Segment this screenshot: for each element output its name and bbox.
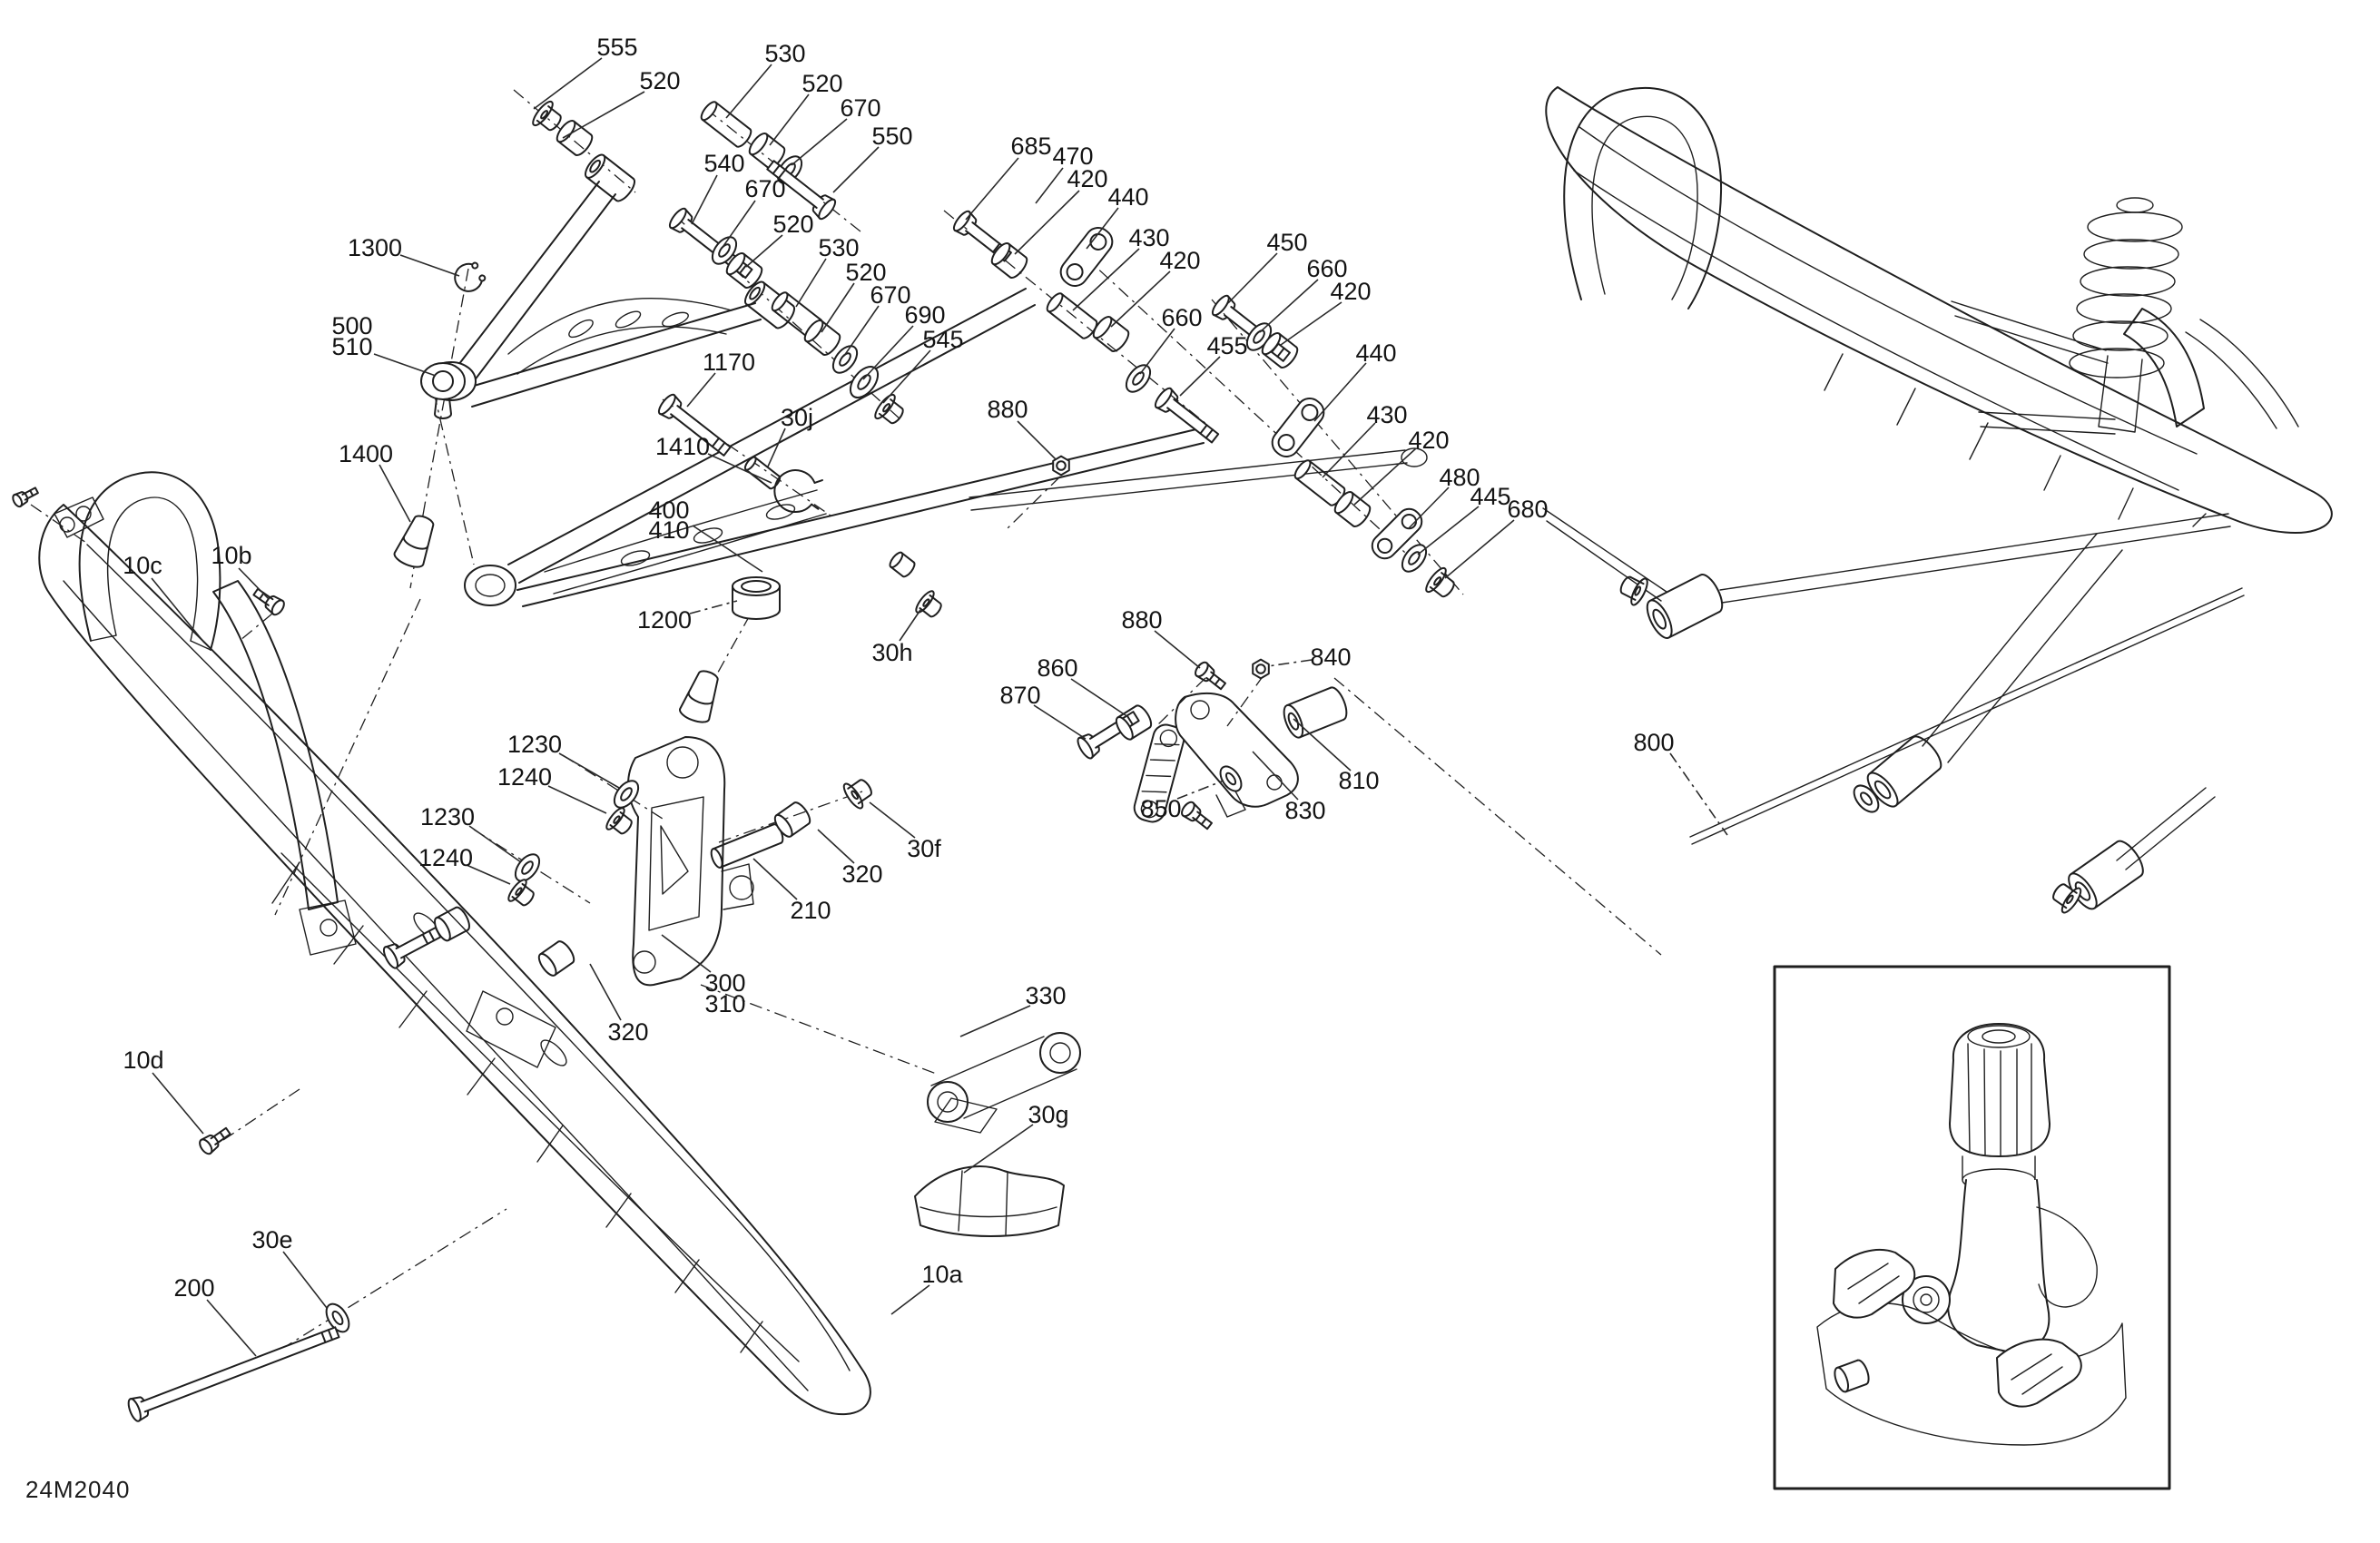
- leader-line-530: [796, 259, 826, 307]
- leader-line-320: [590, 964, 621, 1020]
- part-bigbushing: [582, 152, 638, 203]
- leader-line-550: [833, 147, 879, 192]
- assembly-axis: [259, 1209, 506, 1363]
- callout-330: 330: [1025, 982, 1066, 1009]
- leader-line-1410: [708, 454, 772, 483]
- part-nut: [1253, 660, 1269, 679]
- callout-30h: 30h: [871, 639, 912, 666]
- callout-670: 670: [744, 175, 785, 202]
- detail-inset: [1775, 967, 2169, 1489]
- leader-line-410: [693, 526, 762, 572]
- callout-200: 200: [173, 1274, 214, 1302]
- leader-line-1230: [559, 753, 619, 788]
- part-bushing: [802, 318, 842, 358]
- leader-line-480: [1409, 487, 1449, 528]
- leader-line-530: [726, 64, 772, 118]
- callout-450: 450: [1266, 229, 1307, 256]
- leader-line-210: [753, 859, 797, 899]
- callout-410: 410: [648, 516, 689, 544]
- leader-line-10d: [152, 1073, 203, 1134]
- callout-445: 445: [1470, 483, 1510, 510]
- leader-line-860: [1071, 679, 1128, 717]
- leader-line-510: [374, 354, 436, 376]
- leader-line-470: [1036, 168, 1063, 203]
- callout-430: 430: [1366, 401, 1407, 428]
- part-bolt: [126, 1322, 341, 1423]
- part-bigbushing: [1642, 571, 1726, 642]
- leader-line-660: [1140, 329, 1175, 374]
- part-spacer: [699, 100, 754, 150]
- callout-1410: 1410: [655, 433, 710, 460]
- callout-660: 660: [1161, 304, 1202, 331]
- callout-545: 545: [922, 326, 963, 353]
- callout-520: 520: [772, 211, 813, 238]
- part-screw: [11, 485, 39, 508]
- callout-30e: 30e: [251, 1226, 292, 1253]
- callout-800: 800: [1633, 729, 1674, 756]
- part-bumper: [392, 512, 440, 571]
- leader-line-520: [821, 283, 854, 332]
- callout-830: 830: [1284, 797, 1325, 824]
- leader-line-330: [960, 1006, 1030, 1037]
- part-bushing: [1332, 489, 1372, 529]
- leader-line-670: [844, 306, 879, 356]
- assembly-axis: [275, 599, 420, 915]
- assembly-axis: [1334, 678, 1661, 955]
- leader-line-670: [792, 119, 847, 165]
- leader-line-880: [1155, 631, 1200, 668]
- leader-line-1200: [690, 601, 737, 614]
- part-clampring: [772, 467, 823, 516]
- callout-1170: 1170: [703, 349, 755, 376]
- callout-690: 690: [904, 301, 945, 329]
- assembly-axis: [514, 90, 635, 192]
- leader-line-1240: [548, 786, 606, 813]
- leader-line-320: [818, 830, 854, 863]
- part-bolt: [1153, 386, 1223, 447]
- part-flangenut: [604, 806, 636, 840]
- callout-880: 880: [1121, 606, 1162, 634]
- leader-line-30e: [283, 1252, 327, 1308]
- part-bigbushing: [1280, 685, 1350, 741]
- part-bushing: [772, 800, 812, 839]
- callout-30j: 30j: [781, 404, 813, 431]
- part-screw: [1179, 800, 1215, 832]
- part-bushing: [536, 939, 576, 978]
- leader-line-520: [563, 92, 644, 138]
- callout-685: 685: [1010, 133, 1051, 160]
- part-spacer: [1045, 291, 1100, 341]
- assembly-axis: [31, 505, 86, 543]
- leader-line-800: [1670, 753, 1727, 835]
- leader-line-520: [746, 235, 782, 267]
- part-link2: [1056, 222, 1117, 290]
- callout-1200: 1200: [637, 606, 692, 634]
- leader-line-680: [1445, 520, 1514, 578]
- callout-420: 420: [1330, 278, 1371, 305]
- callout-1300: 1300: [348, 234, 402, 261]
- part-bushing: [554, 118, 595, 158]
- part-flangenut: [1616, 570, 1650, 606]
- leader-line-450: [1228, 253, 1277, 303]
- part-screw: [251, 585, 287, 617]
- callout-1240: 1240: [497, 763, 552, 791]
- callout-455: 455: [1206, 332, 1247, 359]
- callout-850: 850: [1140, 795, 1181, 822]
- leader-line-420: [1354, 448, 1416, 505]
- leader-line-1170: [687, 373, 715, 407]
- callout-670: 670: [840, 94, 880, 122]
- leader-line-1230: [469, 826, 521, 862]
- callout-440: 440: [1355, 339, 1396, 367]
- callout-810: 810: [1338, 767, 1379, 794]
- leader-line-520: [770, 94, 809, 145]
- callout-510: 510: [331, 333, 372, 360]
- leader-line-420: [1281, 302, 1342, 345]
- assembly-axis: [240, 614, 272, 641]
- leader-line-880: [1018, 421, 1056, 459]
- callout-30f: 30f: [907, 835, 941, 862]
- callouts: 5555205305206705505406705205305206706905…: [123, 34, 1727, 1356]
- callout-10b: 10b: [211, 542, 251, 569]
- leader-line-545: [883, 350, 930, 403]
- leader-line-10a: [891, 1285, 929, 1314]
- callout-1230: 1230: [507, 731, 562, 758]
- callout-520: 520: [802, 70, 842, 97]
- leader-line-670: [723, 201, 755, 246]
- drawing-number: 24M2040: [25, 1476, 130, 1504]
- callout-440: 440: [1107, 183, 1148, 211]
- callout-310: 310: [704, 990, 745, 1017]
- part-bumper: [678, 667, 724, 725]
- part-snapring: [450, 259, 488, 296]
- callout-10c: 10c: [123, 552, 162, 579]
- part-screw: [1193, 660, 1228, 693]
- leader-line-1300: [400, 255, 459, 276]
- callout-860: 860: [1037, 654, 1077, 682]
- callout-880: 880: [987, 396, 1028, 423]
- part-cup: [733, 577, 780, 619]
- assembly-axis: [223, 1089, 300, 1140]
- part-balljoint: [421, 363, 465, 418]
- leader-line-870: [1034, 705, 1086, 739]
- callout-320: 320: [841, 860, 882, 888]
- part-screw: [197, 1125, 232, 1156]
- callout-420: 420: [1067, 165, 1107, 192]
- leader-line-840: [1268, 660, 1312, 666]
- leader-line-200: [207, 1300, 256, 1356]
- callout-520: 520: [639, 67, 680, 94]
- leader-line-1240: [467, 865, 510, 884]
- callout-420: 420: [1159, 247, 1200, 274]
- callout-680: 680: [1507, 496, 1548, 523]
- part-flangenut: [913, 589, 946, 623]
- leader-line-30h: [900, 610, 920, 641]
- callout-10d: 10d: [123, 1047, 163, 1074]
- parts-diagram-page: 5555205305206705505406705205305206706905…: [0, 0, 2380, 1543]
- part-bushing: [1090, 314, 1131, 354]
- leader-line-420: [1015, 191, 1079, 254]
- callout-555: 555: [596, 34, 637, 61]
- callout-320: 320: [607, 1018, 648, 1046]
- callout-1400: 1400: [339, 440, 393, 467]
- callout-1230: 1230: [420, 803, 475, 830]
- callout-30g: 30g: [1028, 1101, 1068, 1128]
- leader-line-540: [692, 175, 717, 224]
- exploded-view-art: 5555205305206705505406705205305206706905…: [0, 0, 2380, 1543]
- callout-530: 530: [818, 234, 859, 261]
- leader-line-1400: [379, 465, 410, 522]
- leader-line-30f: [870, 802, 915, 838]
- callout-840: 840: [1310, 644, 1351, 671]
- leader-line-810: [1293, 719, 1351, 771]
- part-link2: [1267, 393, 1329, 461]
- leader-line-440: [1314, 363, 1366, 421]
- leader-line-445: [1418, 506, 1479, 555]
- part-washer: [511, 850, 545, 885]
- callout-420: 420: [1408, 427, 1449, 454]
- part-flangenut: [506, 878, 538, 911]
- callout-530: 530: [764, 40, 805, 67]
- part-bushing: [888, 551, 917, 579]
- callout-550: 550: [871, 123, 912, 150]
- callout-870: 870: [999, 682, 1040, 709]
- callout-10a: 10a: [921, 1261, 963, 1288]
- leader-line-555: [534, 58, 602, 109]
- leader-line-685: [966, 158, 1018, 220]
- callout-210: 210: [790, 897, 831, 924]
- callout-540: 540: [703, 150, 744, 177]
- part-flangenut: [841, 773, 877, 811]
- ski-stop-parts: [915, 1033, 1080, 1236]
- callout-1240: 1240: [418, 844, 473, 871]
